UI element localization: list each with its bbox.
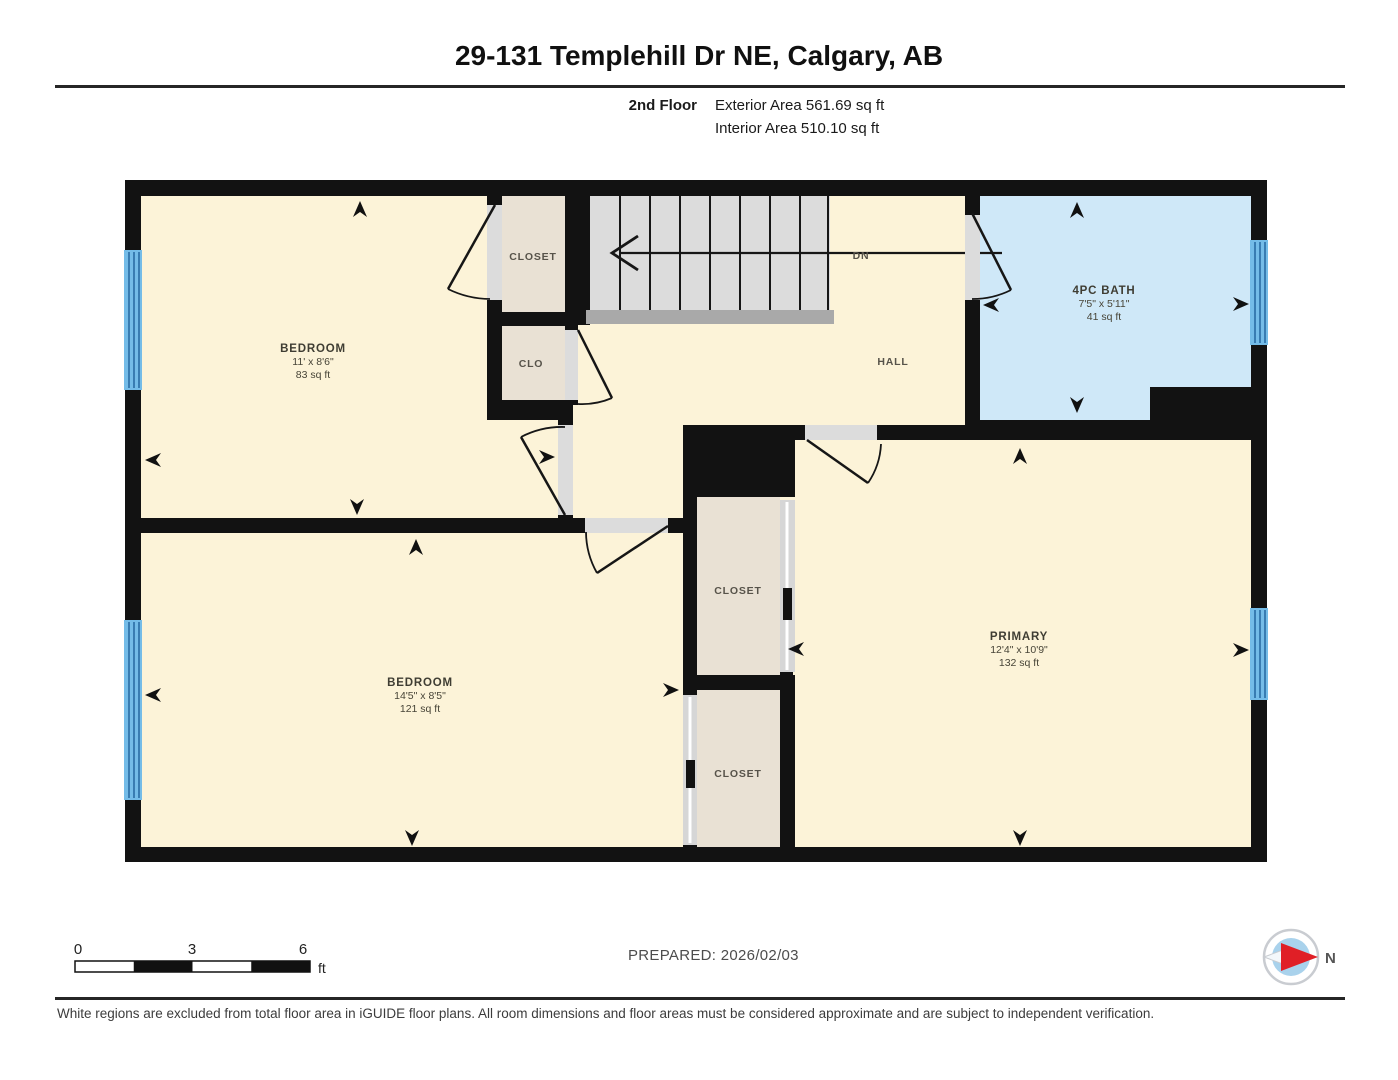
room-label: CLOSET <box>714 585 761 597</box>
room-area: 132 sq ft <box>999 657 1039 669</box>
room-label: 4PC BATH <box>1072 285 1135 297</box>
room-label: BEDROOM <box>280 343 346 355</box>
room-label: PRIMARY <box>990 631 1048 643</box>
room-dims: 12'4" x 10'9" <box>990 644 1048 656</box>
disclaimer-text: White regions are excluded from total fl… <box>57 1006 1357 1021</box>
room-label: CLOSET <box>509 251 556 263</box>
room-area: 83 sq ft <box>296 369 331 381</box>
window <box>124 620 142 800</box>
room-dims: 7'5" x 5'11" <box>1079 298 1130 310</box>
room-dims: 11' x 8'6" <box>292 356 334 368</box>
room-area: 41 sq ft <box>1087 311 1122 323</box>
window <box>1250 240 1268 345</box>
room-label: BEDROOM <box>387 677 453 689</box>
scale-tick-0: 0 <box>74 941 82 958</box>
scale-unit: ft <box>318 960 326 976</box>
window <box>124 250 142 390</box>
scale-tick-3: 3 <box>188 941 196 958</box>
compass-north-icon: N <box>1264 930 1336 984</box>
north-label: N <box>1325 950 1336 967</box>
floor-plan: BEDROOM 11' x 8'6" 83 sq ft BEDROOM 14'5… <box>0 0 1398 1080</box>
footer-divider <box>55 997 1345 1000</box>
room-label: HALL <box>877 356 908 368</box>
scale-bar: 0 3 6 ft <box>74 941 326 976</box>
prepared-date: PREPARED: 2026/02/03 <box>628 947 799 964</box>
room-dims: 14'5" x 8'5" <box>394 690 446 702</box>
scale-tick-6: 6 <box>299 941 307 958</box>
room-label: CLOSET <box>714 768 761 780</box>
floor-plan-page: 29-131 Templehill Dr NE, Calgary, AB 2nd… <box>0 0 1398 1080</box>
room-label: CLO <box>519 358 544 370</box>
stairs-dn-label: DN <box>853 250 870 262</box>
room-bedroom-1-alcove <box>487 420 558 518</box>
room-area: 121 sq ft <box>400 703 440 715</box>
window <box>1250 608 1268 700</box>
